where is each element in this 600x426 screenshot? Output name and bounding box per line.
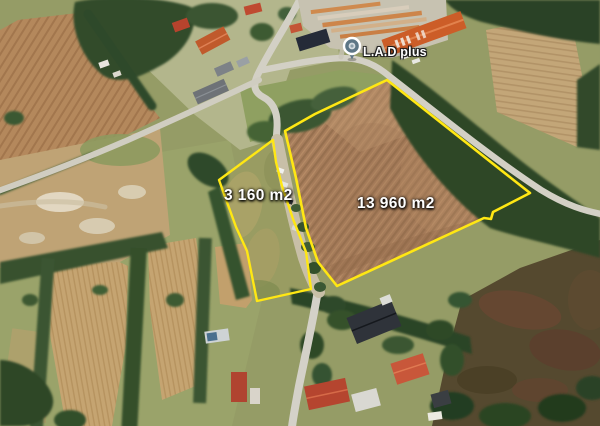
satellite-imagery — [0, 0, 600, 426]
small-parcel-area-label: 3 160 m2 — [224, 188, 293, 204]
large-parcel-area-label: 13 960 m2 — [357, 196, 435, 212]
map-pin-label: L.A.D plus — [363, 46, 427, 59]
satellite-map[interactable]: 3 160 m2 13 960 m2 L.A.D plus — [0, 0, 600, 426]
field-strip-a — [50, 252, 128, 426]
